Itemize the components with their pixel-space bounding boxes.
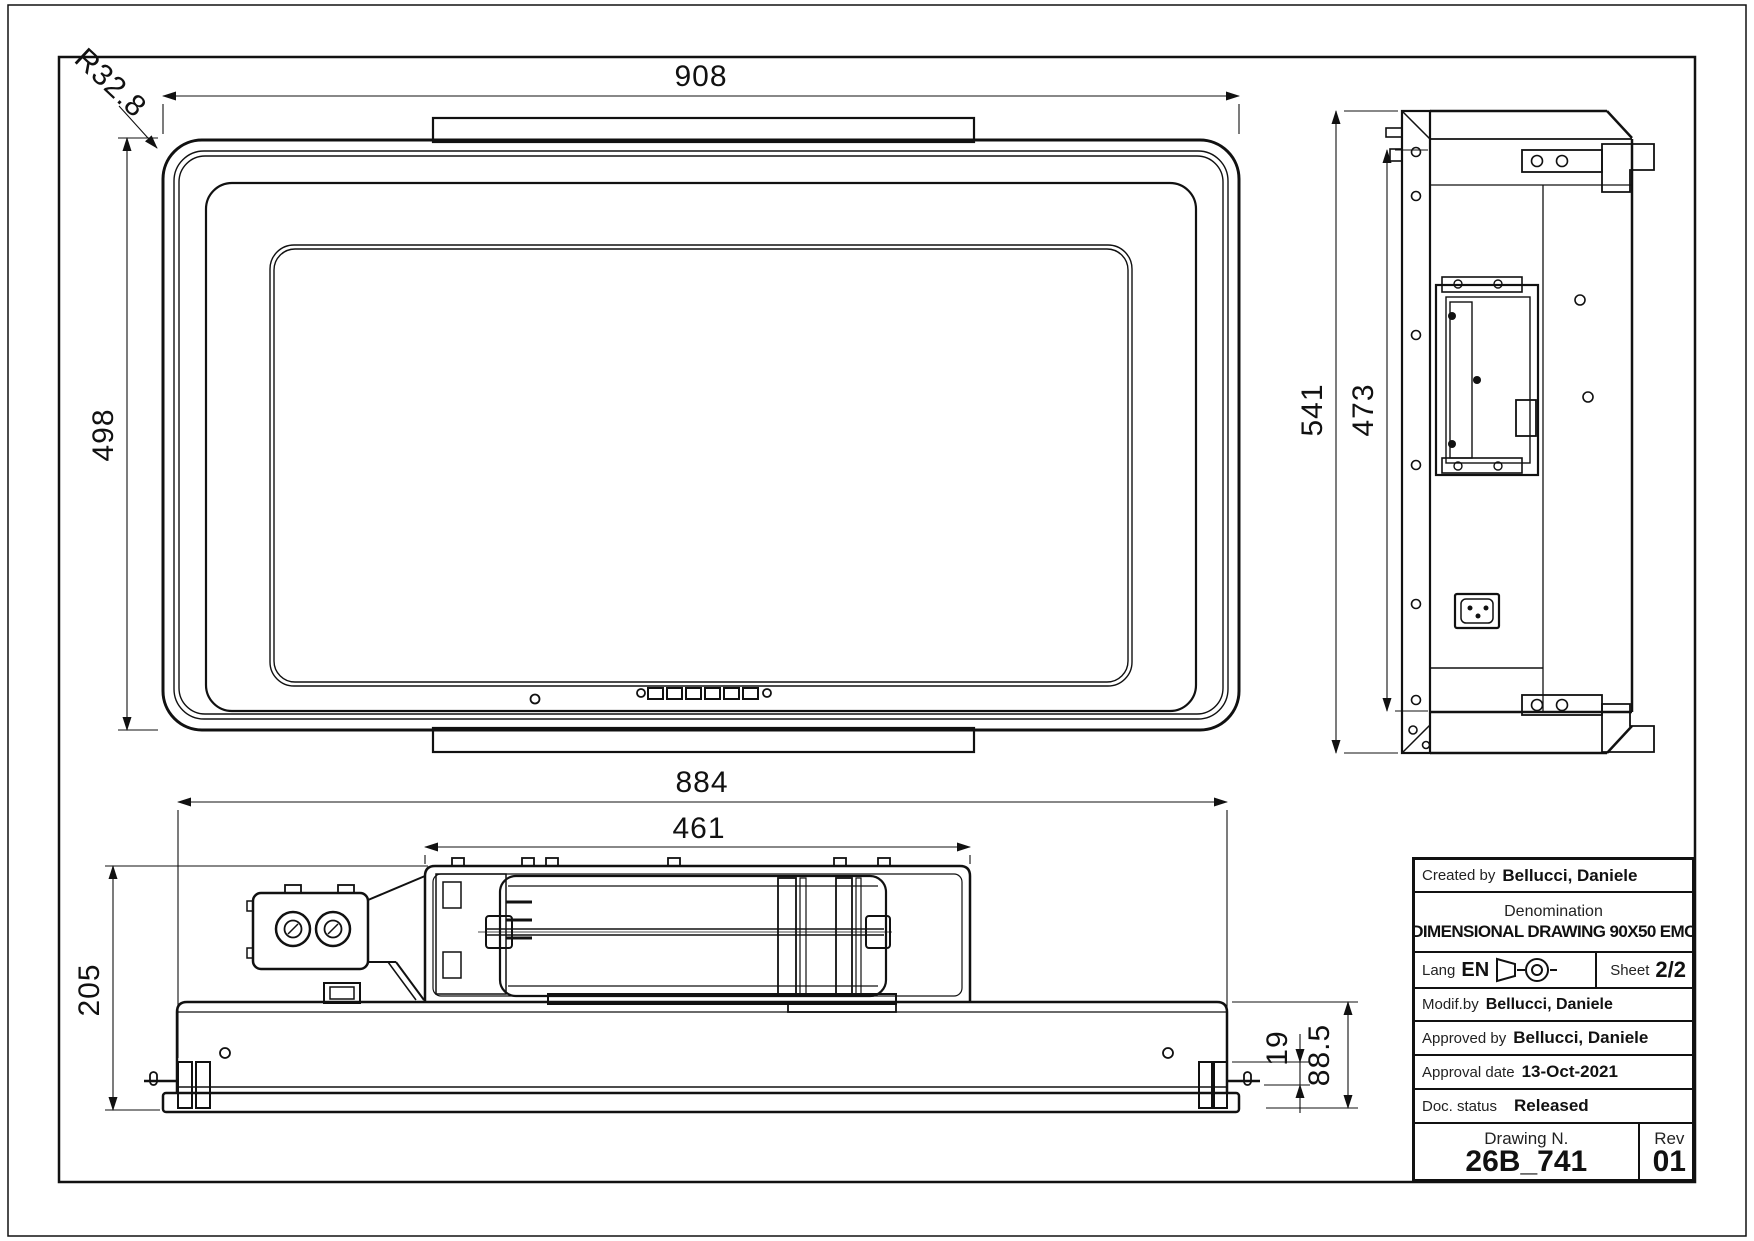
sheet-cell: Sheet 2/2	[1604, 953, 1692, 987]
approval-date-value: 13-Oct-2021	[1522, 1062, 1618, 1082]
dim-461: 461	[425, 812, 970, 864]
dim-label-498: 498	[87, 408, 120, 461]
dim-19: 19	[1232, 1030, 1310, 1113]
control-button	[705, 688, 720, 699]
control-button	[667, 688, 682, 699]
dim-473: 473	[1347, 150, 1428, 711]
dim-label-908: 908	[674, 60, 727, 93]
title-block: Created by Bellucci, Daniele Denominatio…	[1412, 857, 1695, 1182]
created-by-value: Bellucci, Daniele	[1502, 866, 1637, 886]
created-by-label: Created by	[1422, 867, 1495, 884]
body-outline	[163, 140, 1239, 730]
lang-cell: Lang EN	[1415, 953, 1597, 987]
approved-by-value: Bellucci, Daniele	[1513, 1028, 1648, 1048]
dim-label-88-5: 88.5	[1303, 1024, 1336, 1086]
approved-by-label: Approved by	[1422, 1030, 1506, 1047]
lang-label: Lang	[1422, 962, 1455, 979]
control-panel	[531, 688, 772, 704]
doc-status-label: Doc. status	[1422, 1098, 1497, 1115]
drawing-number-value: 26B_741	[1465, 1149, 1587, 1175]
glass-panel	[206, 183, 1196, 711]
rev-value: 01	[1653, 1149, 1686, 1175]
hole	[531, 695, 540, 704]
dim-88-5: 88.5	[1232, 1002, 1358, 1108]
wall-bracket-bottom	[1522, 695, 1654, 752]
drawing-sheet: 908 498 R32.8 541 473 884	[0, 0, 1754, 1241]
approval-date-label: Approval date	[1422, 1064, 1515, 1081]
dim-label-19: 19	[1261, 1030, 1294, 1065]
junction-box	[247, 876, 425, 1003]
title-row-denomination: Denomination DIMENSIONAL DRAWING 90X50 E…	[1415, 893, 1692, 953]
rev-cell: Rev 01	[1647, 1124, 1692, 1179]
front-view	[144, 858, 1260, 1112]
dim-908: 908	[163, 60, 1239, 134]
dim-498: 498	[87, 138, 158, 730]
title-row-drawing-number: Drawing N. 26B_741 Rev 01	[1415, 1124, 1692, 1179]
drawing-number-cell: Drawing N. 26B_741	[1415, 1124, 1640, 1179]
title-row-doc-status: Doc. status Released	[1415, 1090, 1692, 1124]
dim-label-r32-8: R32.8	[68, 42, 153, 124]
title-row-approval-date: Approval date 13-Oct-2021	[1415, 1056, 1692, 1090]
bottom-flange	[163, 1093, 1239, 1112]
sheet-label: Sheet	[1610, 962, 1649, 979]
suction-opening	[270, 245, 1132, 686]
modified-by-value: Bellucci, Daniele	[1486, 996, 1613, 1014]
mounting-foot	[1199, 1062, 1212, 1108]
side-view	[1386, 111, 1654, 753]
modified-by-label: Modif.by	[1422, 996, 1479, 1013]
control-button	[743, 688, 758, 699]
title-row-lang-sheet: Lang EN Sheet 2/2	[1415, 953, 1692, 989]
dim-label-473: 473	[1347, 383, 1380, 436]
mounting-tab-top	[433, 118, 974, 142]
dim-label-461: 461	[672, 812, 725, 845]
top-view	[163, 118, 1239, 752]
blower-assembly	[478, 876, 896, 1012]
dim-label-884: 884	[675, 766, 728, 799]
dim-label-205: 205	[73, 963, 106, 1016]
title-row-modified-by: Modif.by Bellucci, Daniele	[1415, 989, 1692, 1022]
denomination-label: Denomination	[1504, 903, 1603, 921]
doc-status-value: Released	[1514, 1096, 1589, 1116]
control-button	[648, 688, 663, 699]
dim-205: 205	[73, 866, 428, 1110]
title-row-created-by: Created by Bellucci, Daniele	[1415, 860, 1692, 893]
power-socket-icon	[1455, 594, 1499, 628]
control-button	[686, 688, 701, 699]
mounting-foot	[178, 1062, 192, 1108]
denomination-value: DIMENSIONAL DRAWING 90X50 EMC	[1415, 922, 1692, 942]
mounting-frame-bar	[1402, 111, 1430, 753]
motor-unit-side	[1436, 277, 1538, 475]
first-angle-projection-icon	[1495, 956, 1565, 984]
title-row-approved-by: Approved by Bellucci, Daniele	[1415, 1022, 1692, 1056]
dimensions: 908 498 R32.8 541 473 884	[68, 42, 1428, 1113]
hood-body	[144, 1002, 1260, 1112]
lang-value: EN	[1461, 959, 1489, 982]
control-button	[724, 688, 739, 699]
dim-label-541: 541	[1296, 383, 1329, 436]
sheet-value: 2/2	[1655, 957, 1686, 983]
mounting-tab-bottom	[433, 728, 974, 752]
